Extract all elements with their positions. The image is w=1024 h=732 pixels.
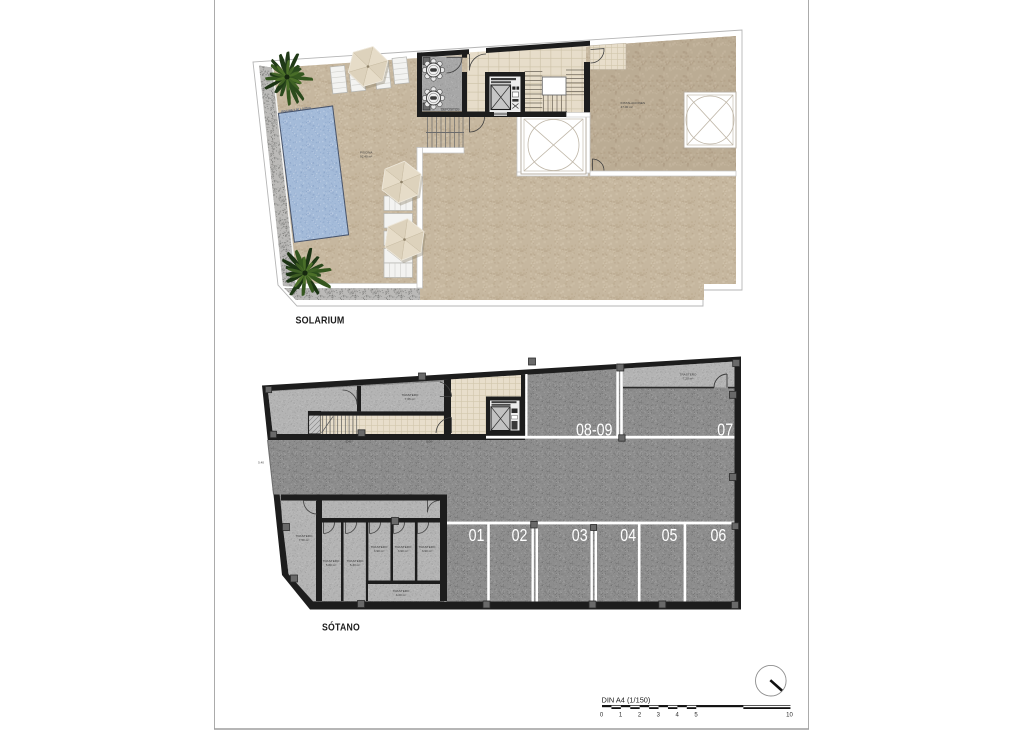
svg-text:0.00: 0.00	[426, 440, 432, 444]
svg-text:5.33 m²: 5.33 m²	[350, 563, 361, 567]
svg-text:4.00 m²: 4.00 m²	[396, 593, 407, 597]
svg-text:47.00 m²: 47.00 m²	[621, 105, 633, 109]
svg-text:DEPOSITOS: DEPOSITOS	[441, 108, 460, 112]
svg-text:7.20 m²: 7.20 m²	[683, 377, 694, 381]
svg-text:02: 02	[512, 525, 528, 545]
svg-text:3.90 m²: 3.90 m²	[422, 549, 433, 553]
svg-text:08-09: 08-09	[576, 420, 612, 440]
svg-text:06: 06	[710, 525, 726, 545]
svg-text:92.40 m²: 92.40 m²	[360, 155, 372, 159]
svg-text:3.90 m²: 3.90 m²	[398, 549, 409, 553]
svg-text:SÓTANO: SÓTANO	[322, 621, 360, 634]
svg-text:5.40: 5.40	[258, 461, 264, 465]
svg-text:07: 07	[717, 420, 733, 440]
svg-text:04: 04	[620, 525, 636, 545]
svg-text:7.50 m²: 7.50 m²	[299, 538, 310, 542]
svg-text:7.66 m²: 7.66 m²	[405, 397, 416, 401]
svg-text:01: 01	[469, 525, 485, 545]
svg-text:SOLARIUM: SOLARIUM	[296, 316, 345, 327]
svg-text:10: 10	[786, 713, 793, 719]
svg-text:-2.45: -2.45	[345, 440, 352, 444]
svg-text:3.90 m²: 3.90 m²	[374, 549, 385, 553]
svg-text:DIN A4 (1/150): DIN A4 (1/150)	[602, 696, 651, 705]
svg-text:5.80 m²: 5.80 m²	[326, 563, 337, 567]
svg-text:03: 03	[572, 525, 588, 545]
svg-text:05: 05	[662, 525, 678, 545]
